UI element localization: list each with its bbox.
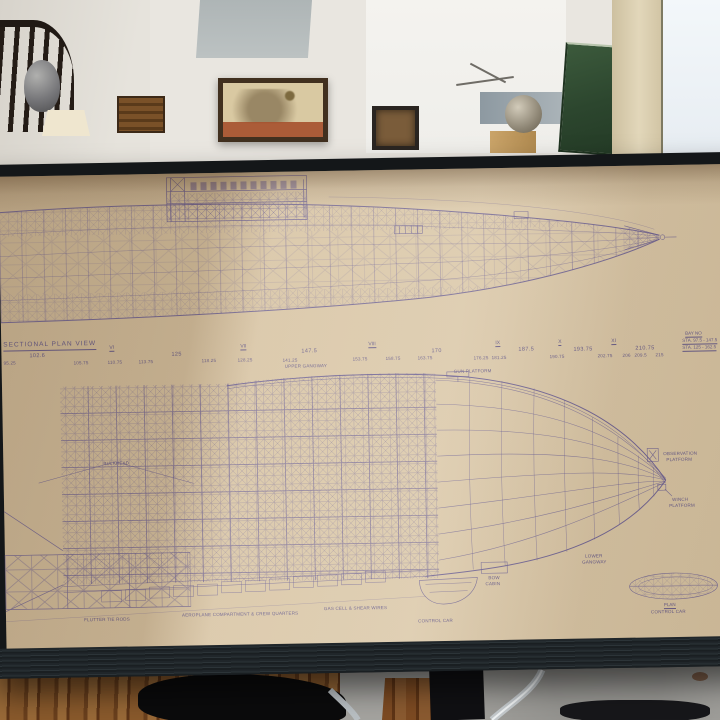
station-label: 181.25 bbox=[492, 356, 507, 361]
label-bow-cabin: BOW bbox=[488, 576, 499, 581]
station-label: 147.5 bbox=[301, 349, 317, 355]
floor-stain bbox=[692, 672, 708, 681]
station-label: 153.75 bbox=[353, 357, 368, 362]
label-flutter-tie-rods: FLUTTER TIE RODS bbox=[84, 618, 130, 623]
bay-table-row: STA. 125 - 162.5 bbox=[682, 345, 716, 351]
label-plan-control-car: CONTROL CAR bbox=[651, 610, 686, 615]
station-label: 95.25 bbox=[4, 361, 16, 366]
station-label: 125 bbox=[171, 353, 181, 359]
view-title: SECTIONAL PLAN VIEW bbox=[3, 341, 96, 351]
label-control-car: CONTROL CAR bbox=[418, 619, 453, 624]
dark-chair-silhouette bbox=[560, 700, 710, 720]
roman-bay-marker: X bbox=[558, 340, 561, 346]
station-label: 210.75 bbox=[635, 346, 654, 352]
station-label: 209.5 bbox=[635, 353, 647, 358]
roman-bay-marker: VIII bbox=[368, 342, 376, 348]
gallery-photo: SECTIONAL PLAN VIEW VI VII VIII IX X XI … bbox=[0, 0, 720, 720]
stone-sphere-sculpture bbox=[505, 95, 542, 133]
station-label: 158.75 bbox=[386, 357, 401, 362]
bright-wall bbox=[663, 0, 720, 154]
roman-bay-marker: VII bbox=[240, 344, 246, 350]
station-label: 110.75 bbox=[108, 361, 123, 366]
wood-wall-artifact bbox=[117, 96, 165, 133]
label-lower-gangway: GANGWAY bbox=[582, 560, 606, 565]
station-label: 215 bbox=[656, 353, 664, 358]
station-label: 193.75 bbox=[573, 347, 592, 353]
ceiling-skylight bbox=[196, 0, 312, 58]
label-winch-platform: PLATFORM bbox=[669, 504, 695, 509]
painting-sketch bbox=[231, 89, 315, 123]
station-label: 113.75 bbox=[139, 360, 154, 365]
roman-bay-marker: XI bbox=[611, 339, 616, 345]
station-label: 176.25 bbox=[474, 356, 489, 361]
station-label: 118.25 bbox=[202, 359, 217, 364]
label-bow-cabin: CABIN bbox=[485, 582, 500, 587]
roman-bay-marker: VI bbox=[109, 346, 114, 352]
station-label: 206 bbox=[623, 354, 631, 359]
airship-plan-view-drawing bbox=[0, 164, 706, 348]
sculpture-pedestal bbox=[490, 131, 536, 153]
label-bulkhead: BULKHEAD bbox=[103, 461, 129, 466]
label-observation-platform: PLATFORM bbox=[666, 458, 692, 463]
roman-bay-marker: IX bbox=[495, 341, 500, 347]
painting-red-band bbox=[223, 122, 323, 137]
station-label: 170 bbox=[431, 349, 441, 355]
bay-table-header: BAY NO bbox=[685, 331, 702, 337]
station-label: 102.6 bbox=[29, 354, 45, 360]
station-label: 202.75 bbox=[598, 354, 613, 359]
station-label: 163.75 bbox=[418, 356, 433, 361]
label-upper-gangway: UPPER GANGWAY bbox=[285, 364, 327, 369]
station-label: 128.25 bbox=[238, 358, 253, 363]
lamp-shade bbox=[42, 110, 90, 136]
blueprint-frame: SECTIONAL PLAN VIEW VI VII VIII IX X XI … bbox=[0, 152, 720, 679]
station-label: 187.5 bbox=[518, 347, 534, 353]
blueprint-paper: SECTIONAL PLAN VIEW VI VII VIII IX X XI … bbox=[0, 164, 720, 649]
airship-bow-elevation-drawing bbox=[2, 359, 720, 637]
label-plan-control-car: PLAN bbox=[664, 603, 676, 609]
label-gun-platform: GUN PLATFORM bbox=[454, 369, 492, 374]
station-label: 190.75 bbox=[550, 355, 565, 360]
metal-urn-sculpture bbox=[24, 60, 60, 112]
station-label: 105.75 bbox=[74, 361, 89, 366]
gallery-column bbox=[612, 0, 664, 155]
small-framed-artwork bbox=[372, 106, 419, 150]
framed-painting bbox=[218, 78, 328, 142]
